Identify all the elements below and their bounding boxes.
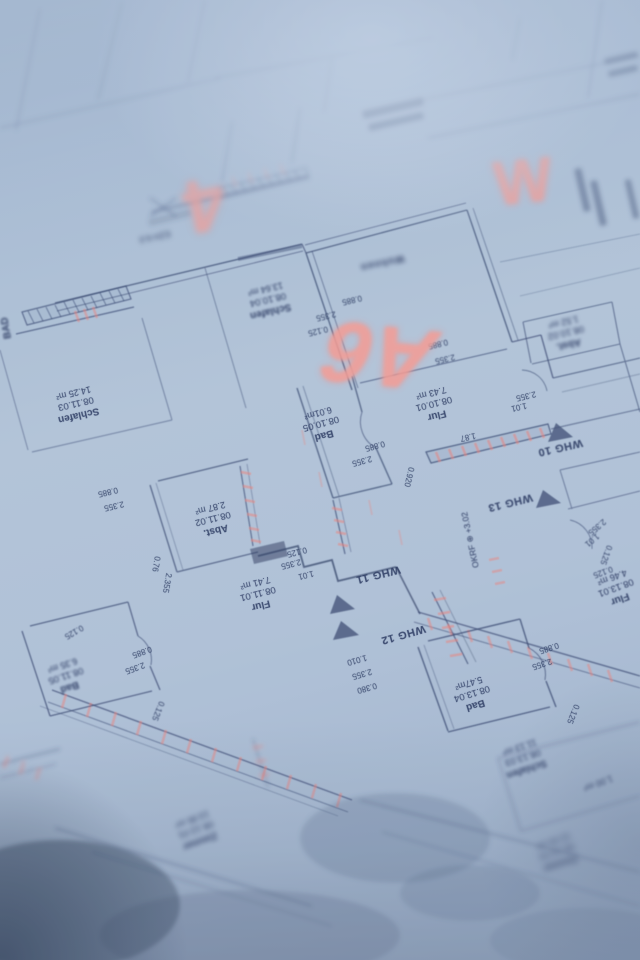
red-marker-a6: A6 xyxy=(315,301,445,410)
red-marker-w: W xyxy=(490,144,556,221)
blueprint-photo: Schlafen08.10.0413.64 m² Schlafen08.11.0… xyxy=(0,0,640,960)
plan-middle-zone xyxy=(0,203,640,816)
wall-highlight-ticks xyxy=(436,428,544,462)
shadow-smudges xyxy=(0,793,640,960)
